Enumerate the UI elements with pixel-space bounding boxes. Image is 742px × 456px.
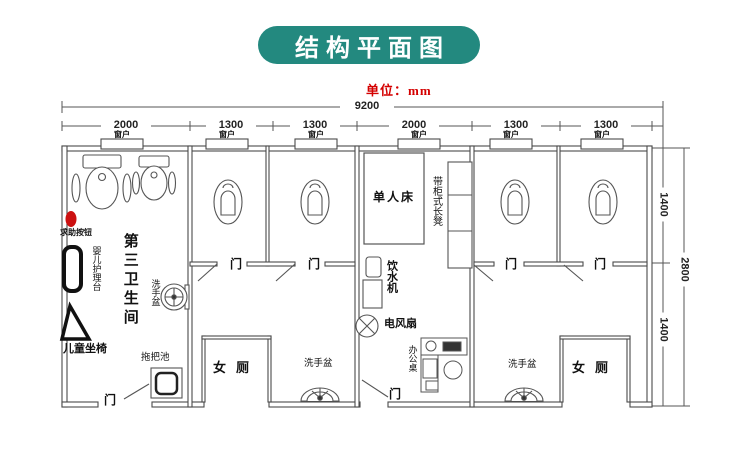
door-label: 门 bbox=[505, 258, 517, 271]
office-desk-icon bbox=[421, 338, 467, 392]
women-toilet-label: 女厕 bbox=[572, 361, 618, 375]
window-label: 窗户 bbox=[403, 129, 435, 140]
toilet-icon bbox=[72, 155, 176, 209]
electric-fan-icon bbox=[356, 315, 378, 337]
office-desk-label: 办公桌 bbox=[407, 345, 416, 387]
women-toilet-label: 女厕 bbox=[213, 361, 259, 375]
third-restroom-label: 第三卫生间 bbox=[121, 233, 137, 335]
window-label: 窗户 bbox=[586, 129, 618, 140]
single-bed-label: 单人床 bbox=[373, 191, 415, 204]
door-swings bbox=[124, 264, 583, 399]
mop-sink-icon bbox=[151, 368, 182, 398]
floorplan-page: 结构平面图 单位：mm bbox=[0, 0, 742, 456]
floorplan-drawing bbox=[0, 0, 742, 456]
child-seat-label: 儿童坐椅 bbox=[63, 344, 107, 356]
help-button-label: 求助按钮 bbox=[60, 229, 92, 237]
baby-care-icon bbox=[64, 247, 81, 291]
door-label: 门 bbox=[230, 258, 242, 271]
washbasin-label: 洗手盆 bbox=[150, 279, 159, 317]
baby-care-label: 婴儿护理台 bbox=[91, 246, 100, 300]
cabinet-bench-icon bbox=[448, 162, 472, 268]
dim-right-bottom: 1400 bbox=[657, 313, 670, 347]
electric-fan-label: 电风扇 bbox=[384, 319, 417, 331]
washbasin-label: 洗手盆 bbox=[508, 361, 537, 371]
help-button-icon bbox=[66, 211, 77, 227]
water-dispenser-icon bbox=[363, 257, 382, 308]
washbasin-round-icon bbox=[161, 284, 189, 310]
dim-right-top: 1400 bbox=[657, 188, 670, 222]
cabinet-bench-label: 带柜式长凳 bbox=[430, 176, 441, 264]
mop-sink-label: 拖把池 bbox=[141, 354, 170, 364]
window-label: 窗户 bbox=[106, 129, 138, 140]
dim-right-total: 2800 bbox=[678, 253, 691, 287]
water-dispenser-label: 饮水机 bbox=[385, 260, 397, 310]
door-label: 门 bbox=[594, 258, 606, 271]
dim-total-width: 9200 bbox=[342, 100, 392, 113]
door-label: 门 bbox=[389, 388, 401, 401]
door-label: 门 bbox=[308, 258, 320, 271]
door-label: 门 bbox=[104, 394, 116, 407]
window-label: 窗户 bbox=[300, 129, 332, 140]
window-label: 窗户 bbox=[495, 129, 527, 140]
washbasin-label: 洗手盆 bbox=[304, 360, 333, 370]
window-label: 窗户 bbox=[211, 129, 243, 140]
